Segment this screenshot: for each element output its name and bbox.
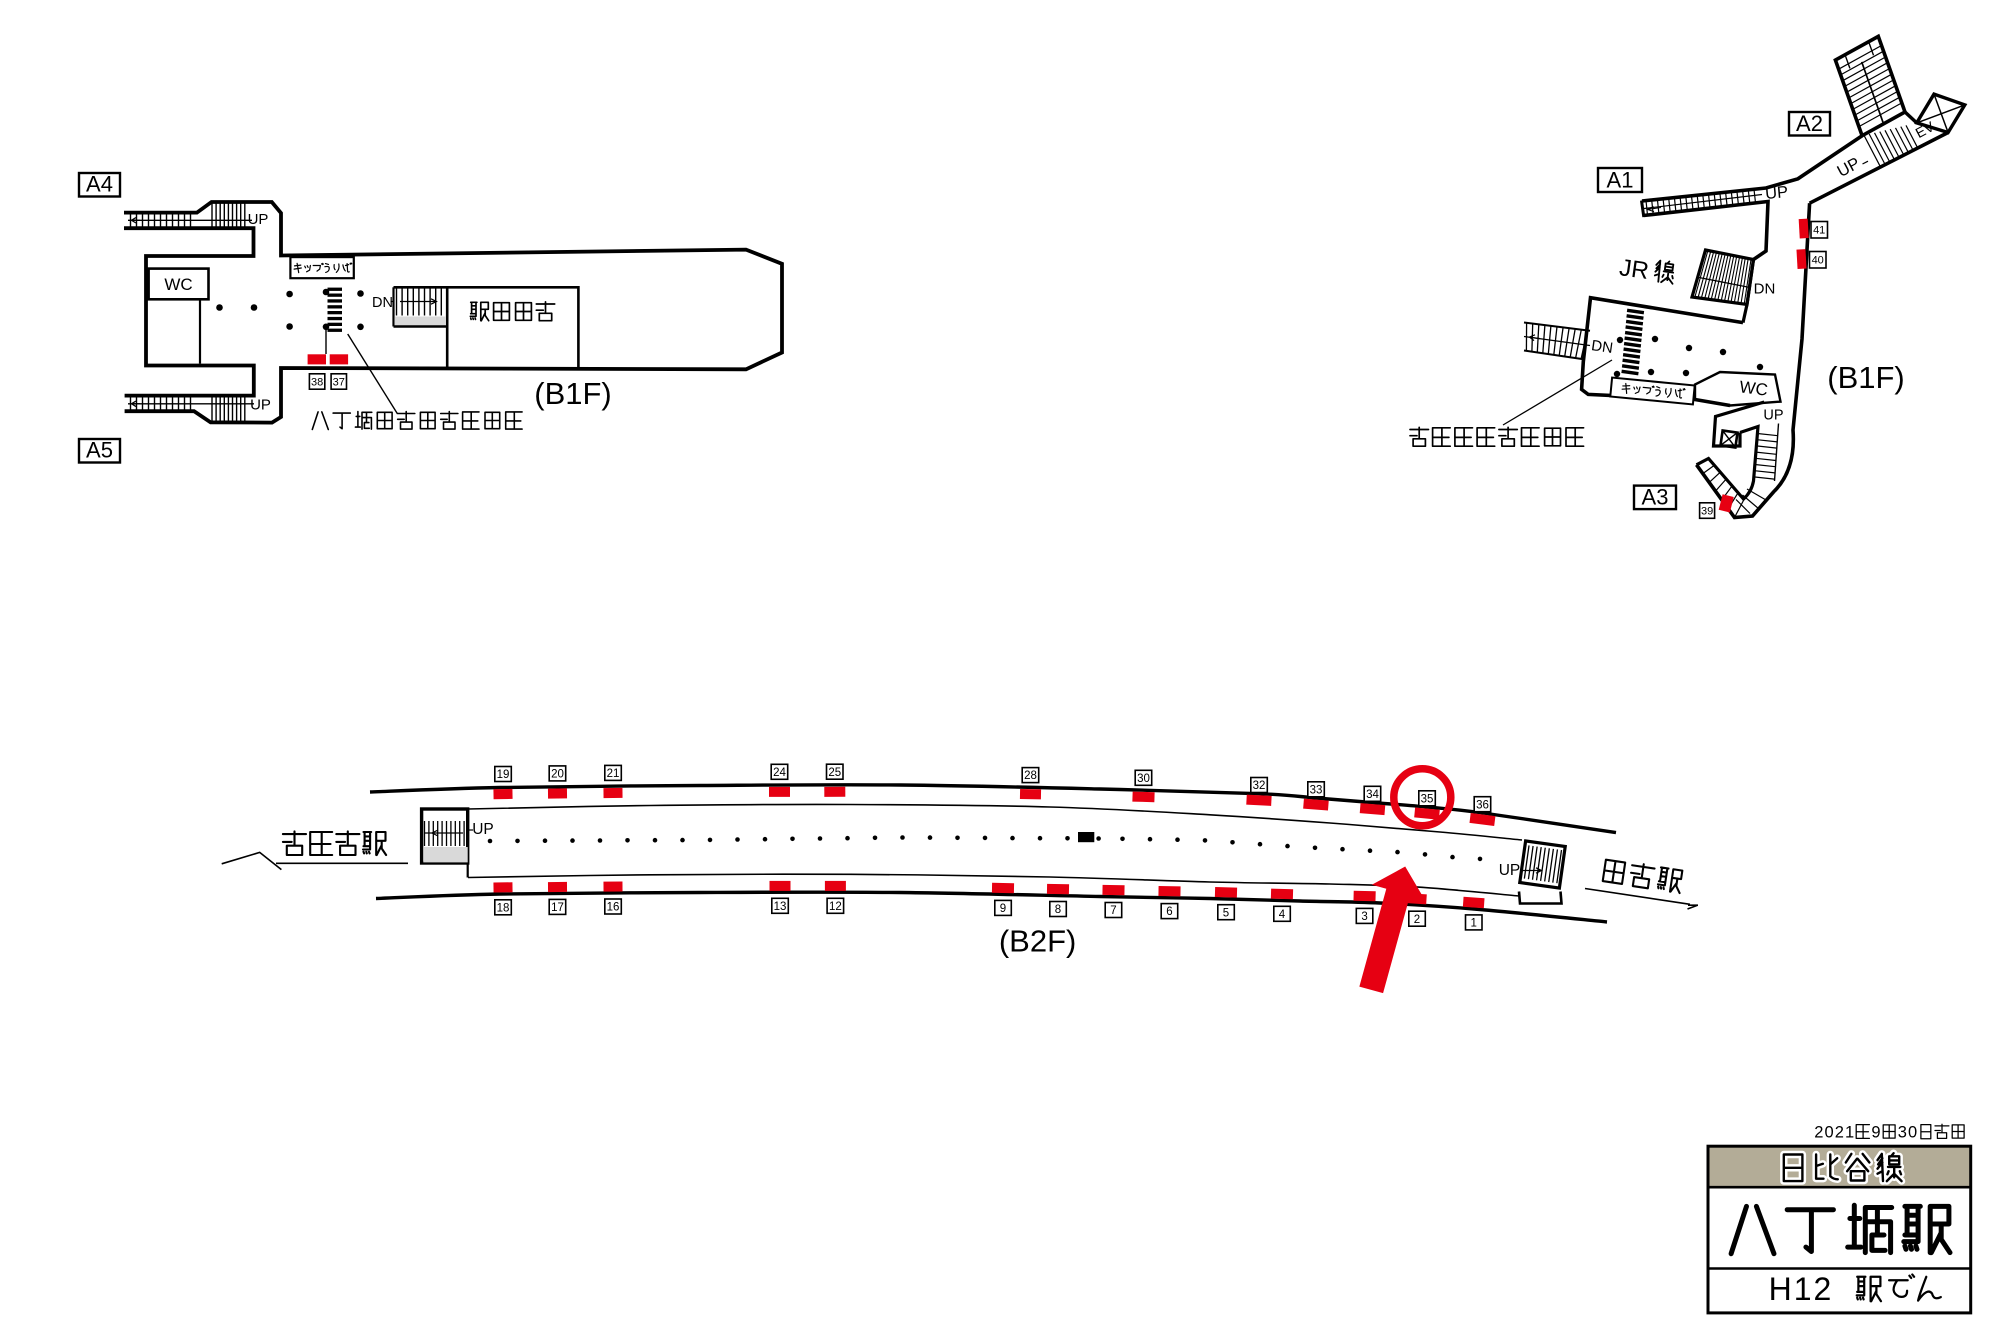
- svg-text:0: 0: [1908, 1123, 1917, 1141]
- svg-text:UP: UP: [1499, 862, 1521, 879]
- svg-text:7: 7: [1110, 905, 1116, 917]
- svg-text:19: 19: [497, 769, 510, 781]
- svg-text:35: 35: [1421, 793, 1434, 805]
- svg-text:28: 28: [1024, 770, 1037, 782]
- svg-text:2: 2: [1835, 1123, 1844, 1141]
- svg-text:WC: WC: [164, 275, 192, 294]
- svg-text:DN: DN: [372, 295, 393, 311]
- svg-text:6: 6: [1166, 906, 1172, 918]
- svg-text:12: 12: [829, 901, 842, 913]
- svg-text:A1: A1: [1607, 168, 1634, 193]
- svg-text:DN: DN: [1754, 281, 1776, 298]
- svg-text:2: 2: [1814, 1123, 1823, 1141]
- svg-text:41: 41: [1813, 225, 1825, 237]
- svg-text:13: 13: [774, 901, 787, 913]
- svg-text:A3: A3: [1642, 485, 1669, 510]
- svg-text:UP: UP: [248, 211, 269, 228]
- svg-text:39: 39: [1701, 506, 1713, 518]
- svg-text:38: 38: [311, 377, 323, 389]
- svg-text:9: 9: [1871, 1123, 1880, 1141]
- svg-text:A4: A4: [86, 172, 113, 197]
- svg-text:33: 33: [1310, 784, 1323, 796]
- svg-text:A2: A2: [1796, 111, 1823, 136]
- svg-text:3: 3: [1361, 911, 1367, 923]
- svg-text:WC: WC: [1738, 377, 1768, 399]
- svg-text:(B1F): (B1F): [534, 376, 612, 411]
- svg-text:UP: UP: [1764, 183, 1788, 203]
- svg-text:16: 16: [607, 902, 620, 914]
- svg-text:25: 25: [828, 767, 841, 779]
- svg-text:21: 21: [607, 768, 620, 780]
- svg-text:20: 20: [551, 769, 564, 781]
- svg-text:17: 17: [551, 902, 564, 914]
- svg-text:8: 8: [1055, 904, 1061, 916]
- svg-text:37: 37: [333, 377, 345, 389]
- svg-text:36: 36: [1476, 799, 1489, 811]
- svg-text:UP: UP: [1763, 408, 1783, 424]
- svg-text:5: 5: [1223, 907, 1229, 919]
- svg-text:0: 0: [1825, 1123, 1834, 1141]
- svg-text:40: 40: [1812, 255, 1824, 267]
- svg-text:UP: UP: [250, 397, 271, 414]
- svg-text:24: 24: [773, 767, 786, 779]
- svg-text:DN: DN: [1590, 337, 1614, 357]
- svg-text:32: 32: [1253, 780, 1266, 792]
- svg-text:1: 1: [1845, 1123, 1854, 1141]
- svg-text:1: 1: [1470, 918, 1476, 930]
- svg-text:18: 18: [497, 902, 510, 914]
- svg-text:9: 9: [1000, 903, 1006, 915]
- svg-text:2: 2: [1414, 914, 1420, 926]
- svg-text:30: 30: [1137, 773, 1150, 785]
- svg-text:3: 3: [1898, 1123, 1907, 1141]
- svg-text:(B1F): (B1F): [1827, 360, 1905, 395]
- svg-text:H12: H12: [1769, 1271, 1834, 1307]
- svg-text:34: 34: [1366, 789, 1379, 801]
- svg-text:JR: JR: [1618, 254, 1651, 285]
- svg-text:A5: A5: [86, 438, 113, 463]
- svg-text:(B2F): (B2F): [999, 924, 1077, 959]
- svg-text:UP: UP: [472, 821, 494, 838]
- svg-text:4: 4: [1279, 909, 1286, 921]
